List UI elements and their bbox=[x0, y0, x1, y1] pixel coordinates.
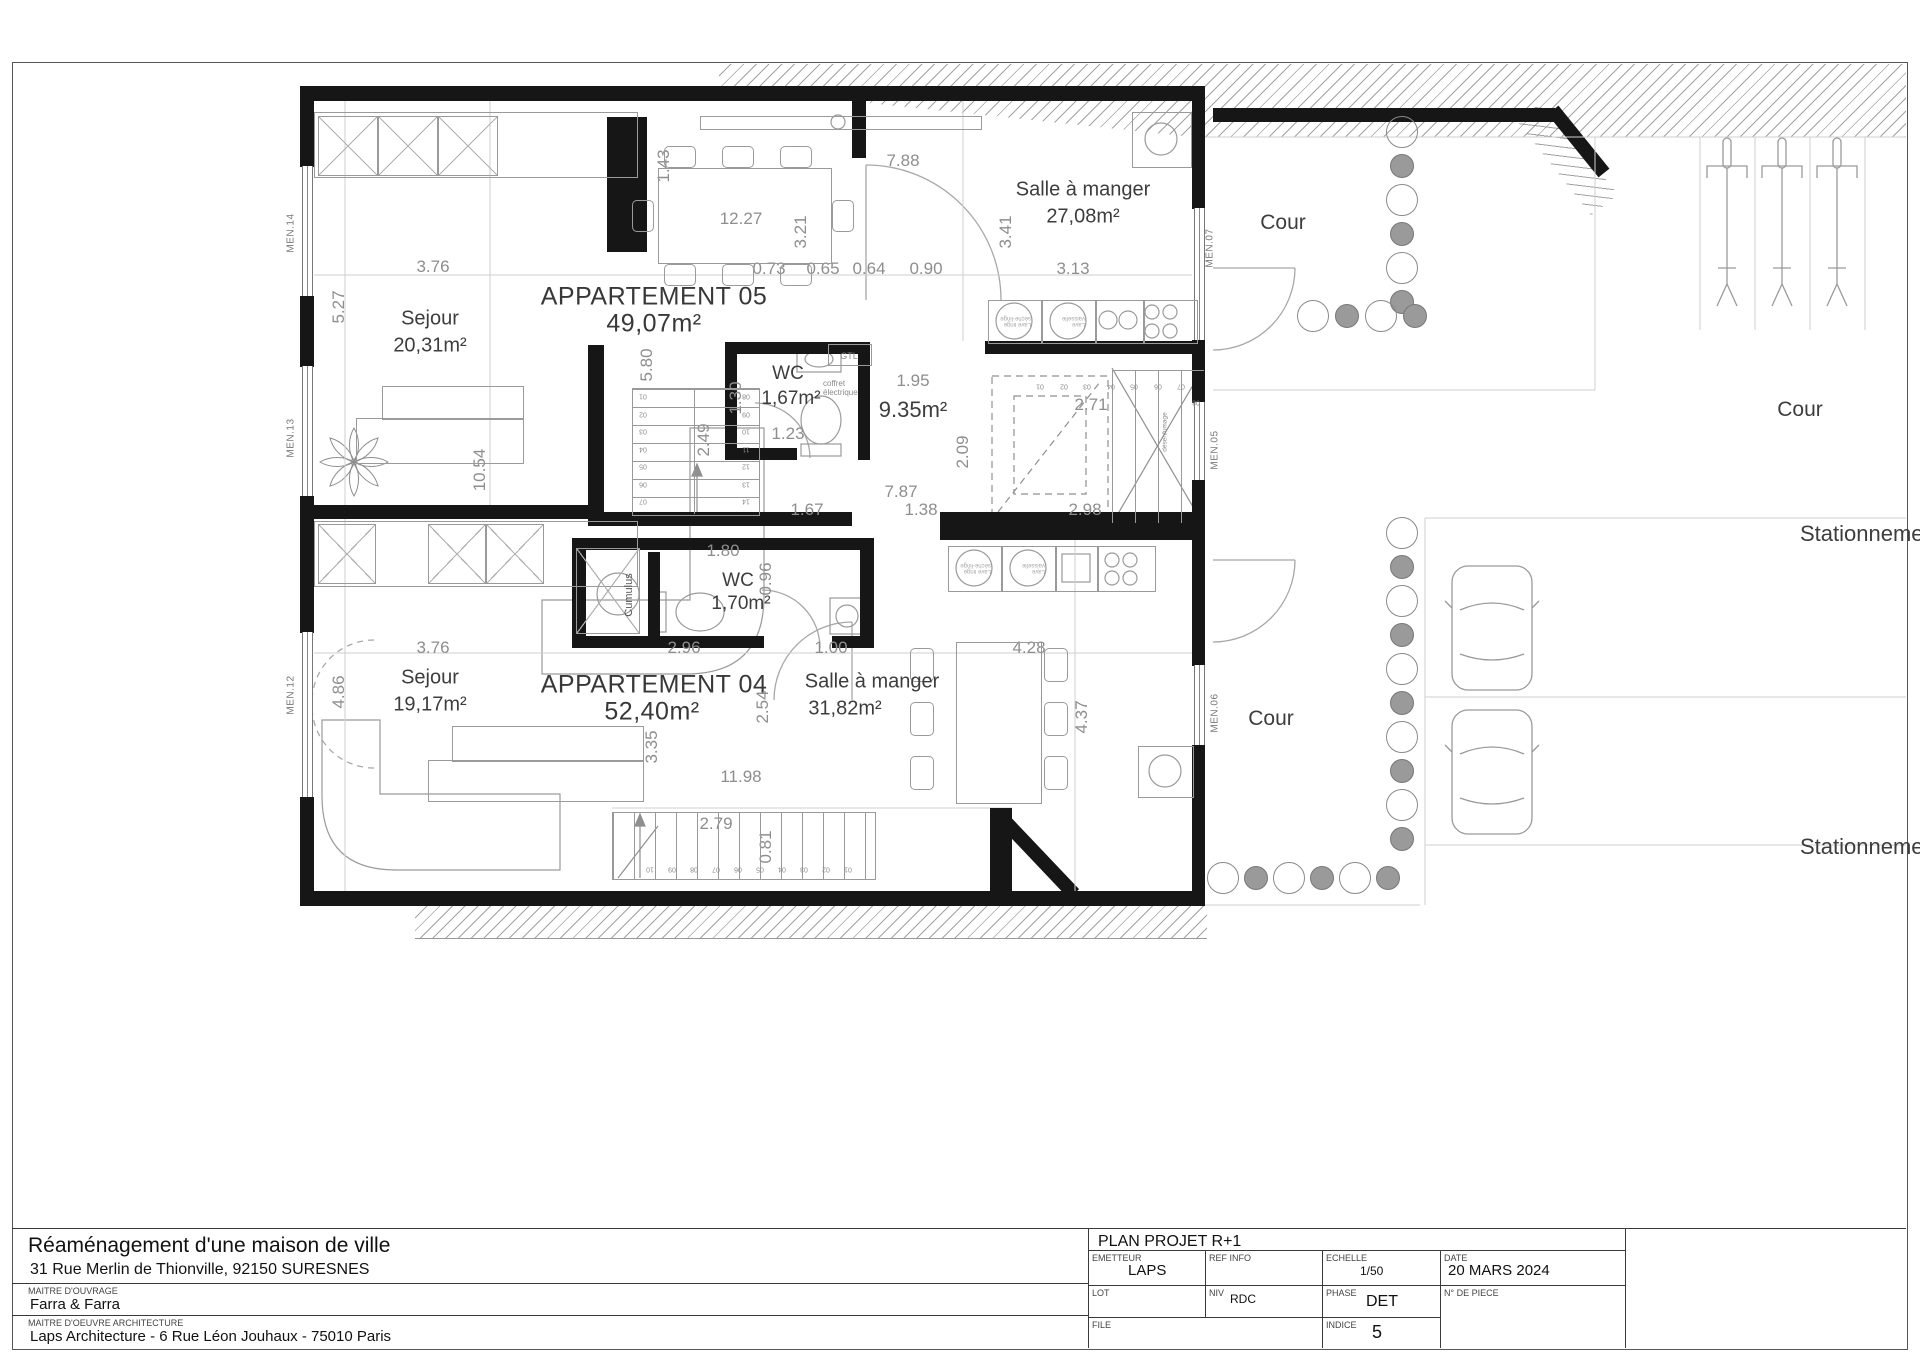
chair bbox=[722, 146, 754, 168]
chair bbox=[780, 264, 812, 286]
step-number: 12 bbox=[742, 463, 750, 470]
step-number: 07 bbox=[712, 866, 720, 873]
emetteur-value: LAPS bbox=[1128, 1262, 1166, 1279]
wall bbox=[1192, 101, 1205, 189]
dimension-label: 1.80 bbox=[706, 541, 739, 561]
dimension-label: 2.98 bbox=[1068, 500, 1101, 520]
stationnement-bottom-label: Stationnement bbox=[1800, 834, 1920, 860]
dimension-label: 0.96 bbox=[756, 562, 776, 595]
indice-label: INDICE bbox=[1326, 1320, 1357, 1330]
wall bbox=[860, 538, 874, 648]
furniture-outline bbox=[1096, 300, 1144, 344]
file-label: FILE bbox=[1092, 1320, 1111, 1330]
room-sejour-04: Sejour bbox=[401, 667, 459, 690]
maitre-ouvrage-label: MAITRE D'OUVRAGE bbox=[28, 1286, 118, 1296]
step-number: 03 bbox=[800, 866, 808, 873]
tree bbox=[1386, 517, 1418, 549]
step-number: 03 bbox=[1083, 383, 1091, 390]
step-number: 06 bbox=[734, 866, 742, 873]
bush bbox=[1390, 623, 1414, 647]
wall bbox=[648, 552, 660, 648]
cour-bottom-label: Cour bbox=[1248, 707, 1294, 731]
echelle-value: 1/50 bbox=[1360, 1264, 1383, 1278]
apartment-05-area: 49,07m² bbox=[606, 310, 701, 339]
phase-value: DET bbox=[1366, 1293, 1398, 1311]
tree bbox=[1207, 862, 1239, 894]
maitre-oeuvre-label: MAITRE D'OEUVRE ARCHITECTURE bbox=[28, 1318, 183, 1328]
chair bbox=[1044, 648, 1068, 682]
cumulus-label: Cumulus bbox=[623, 573, 635, 616]
appliance-label-lave-linge-04: Lave linge sèche-linge bbox=[957, 562, 991, 574]
dimension-label: 1.38 bbox=[904, 500, 937, 520]
tree bbox=[1386, 252, 1418, 284]
hatch-bottom-band bbox=[415, 906, 1207, 939]
bush bbox=[1390, 759, 1414, 783]
bush bbox=[1244, 866, 1268, 890]
furniture-outline bbox=[356, 418, 524, 464]
appliance-label-lave-vaisselle-05: Lave vaisselle bbox=[1051, 315, 1085, 327]
bush bbox=[1376, 866, 1400, 890]
room-salle-a-manger-04: Salle à manger bbox=[805, 671, 940, 694]
bush bbox=[1390, 222, 1414, 246]
room-salle-a-manger-05-area: 27,08m² bbox=[1046, 206, 1119, 229]
dimension-label: 1.95 bbox=[896, 371, 929, 391]
furniture-outline bbox=[1132, 112, 1192, 168]
dimension-label: 3.41 bbox=[996, 215, 1016, 248]
furniture-outline bbox=[658, 168, 832, 264]
coffret-electrique-label: coffret électrique bbox=[823, 380, 867, 398]
step-number: 08 bbox=[690, 866, 698, 873]
piece-label: N° DE PIECE bbox=[1444, 1288, 1499, 1298]
cabinet bbox=[318, 116, 378, 176]
room-wc-05: WC bbox=[772, 363, 804, 385]
date-value: 20 MARS 2024 bbox=[1448, 1262, 1550, 1279]
tree bbox=[1386, 116, 1418, 148]
bush bbox=[1390, 827, 1414, 851]
wall bbox=[300, 797, 314, 905]
room-salle-a-manger-05: Salle à manger bbox=[1016, 179, 1151, 202]
tree bbox=[1386, 585, 1418, 617]
room-hall-05-area: 9.35m² bbox=[879, 397, 947, 423]
furniture-outline bbox=[428, 760, 644, 802]
window-label: MEN.13 bbox=[286, 418, 297, 457]
chair bbox=[910, 756, 934, 790]
central-stair-treads bbox=[632, 388, 760, 516]
dimension-label: 5.27 bbox=[329, 290, 349, 323]
step-number: 13 bbox=[742, 480, 750, 487]
step-number: 07 bbox=[639, 498, 647, 505]
window-label: MEN.07 bbox=[1205, 228, 1216, 267]
step-number: 01 bbox=[1036, 383, 1044, 390]
furniture-outline bbox=[956, 642, 1042, 804]
dimension-label: 4.37 bbox=[1072, 700, 1092, 733]
cabinet bbox=[486, 524, 544, 584]
dimension-label: 7.88 bbox=[886, 151, 919, 171]
dimension-label: 2.09 bbox=[953, 435, 973, 468]
tree bbox=[1273, 862, 1305, 894]
drawing-title: PLAN PROJET R+1 bbox=[1098, 1233, 1241, 1251]
chair bbox=[910, 702, 934, 736]
bush bbox=[1390, 154, 1414, 178]
dimension-label: 11.98 bbox=[720, 767, 761, 787]
wall bbox=[990, 808, 1012, 892]
dimension-label: 0.64 bbox=[852, 259, 885, 279]
cour-top-label: Cour bbox=[1260, 211, 1306, 235]
echelle-label: ECHELLE bbox=[1326, 1253, 1367, 1263]
wall bbox=[1192, 189, 1205, 209]
window-men-14 bbox=[302, 166, 313, 296]
dimension-label: 2.96 bbox=[667, 638, 700, 658]
step-number: 11 bbox=[742, 445, 749, 452]
tree bbox=[1386, 721, 1418, 753]
window-men-12 bbox=[302, 632, 313, 797]
desenfumage-label: désenfumage bbox=[1162, 412, 1169, 451]
wall bbox=[300, 505, 590, 519]
step-number: 05 bbox=[639, 463, 647, 470]
chair bbox=[632, 200, 654, 232]
step-number: 08 bbox=[742, 393, 750, 400]
step-number: 04 bbox=[1107, 383, 1115, 390]
room-sejour-05-area: 20,31m² bbox=[393, 335, 466, 358]
wall bbox=[300, 101, 314, 167]
step-number: 04 bbox=[639, 445, 647, 452]
tree bbox=[1386, 653, 1418, 685]
furniture-outline bbox=[1056, 546, 1098, 592]
step-number: 05 bbox=[756, 866, 764, 873]
cabinet bbox=[438, 116, 498, 176]
dimension-label: 5.80 bbox=[637, 348, 657, 381]
tree bbox=[1365, 300, 1397, 332]
window-men-06 bbox=[1194, 665, 1205, 745]
bush bbox=[1390, 691, 1414, 715]
furniture-outline bbox=[1138, 746, 1194, 798]
room-wc-04-area: 1,70m² bbox=[711, 593, 770, 615]
room-wc-04: WC bbox=[722, 570, 754, 592]
project-address: 31 Rue Merlin de Thionville, 92150 SURES… bbox=[30, 1261, 369, 1279]
bush bbox=[1390, 555, 1414, 579]
dimension-label: 3.76 bbox=[416, 638, 449, 658]
chair bbox=[664, 146, 696, 168]
window-men-13 bbox=[302, 366, 313, 496]
furniture-outline bbox=[452, 726, 644, 762]
wall bbox=[300, 296, 314, 367]
floor-plan-sheet: MEN.14MEN.13MEN.12MEN.07MEN.05MEN.061.43… bbox=[0, 0, 1920, 1358]
niv-value: RDC bbox=[1230, 1292, 1256, 1306]
dimension-label: 1.67 bbox=[790, 500, 823, 520]
apartment-04-title: APPARTEMENT 04 bbox=[541, 671, 768, 700]
furniture-outline bbox=[382, 386, 524, 420]
upper-stair-treads bbox=[1112, 370, 1204, 523]
step-number: 14 bbox=[742, 498, 750, 505]
tree bbox=[1297, 300, 1329, 332]
furniture-outline bbox=[1144, 300, 1198, 344]
bush bbox=[1403, 304, 1427, 328]
step-number: 09 bbox=[668, 866, 676, 873]
dimension-label: 3.76 bbox=[416, 257, 449, 277]
apartment-05-title: APPARTEMENT 05 bbox=[541, 283, 768, 312]
step-number: 10 bbox=[646, 866, 654, 873]
step-number: 06 bbox=[639, 480, 647, 487]
step-number: 05 bbox=[1130, 383, 1138, 390]
window-label: MEN.14 bbox=[286, 213, 297, 252]
wall bbox=[588, 345, 604, 525]
wall bbox=[300, 86, 1205, 101]
stationnement-top-label: Stationnement bbox=[1800, 521, 1920, 547]
dimension-label: 2.71 bbox=[1074, 395, 1107, 415]
window-label: MEN.06 bbox=[1210, 693, 1221, 732]
lot-label: LOT bbox=[1092, 1288, 1110, 1298]
wall bbox=[1213, 108, 1555, 122]
wall bbox=[300, 891, 1205, 906]
room-salle-a-manger-04-area: 31,82m² bbox=[808, 698, 881, 721]
dimension-label: 3.13 bbox=[1056, 259, 1089, 279]
project-title: Réaménagement d'une maison de ville bbox=[28, 1234, 390, 1258]
window-label: MEN.05 bbox=[1210, 430, 1221, 469]
room-sejour-05: Sejour bbox=[401, 308, 459, 331]
apartment-04-area: 52,40m² bbox=[604, 698, 699, 727]
bush bbox=[1335, 304, 1359, 328]
appliance-label-lave-vaisselle-04: Lave vaisselle bbox=[1011, 562, 1045, 574]
chair bbox=[1044, 756, 1068, 790]
room-sejour-04-area: 19,17m² bbox=[393, 694, 466, 717]
tree bbox=[1339, 862, 1371, 894]
tree bbox=[1386, 789, 1418, 821]
step-number: 06 bbox=[1154, 383, 1162, 390]
ref-info-label: REF INFO bbox=[1209, 1253, 1251, 1263]
step-number: 01 bbox=[639, 393, 647, 400]
cabinet bbox=[378, 116, 438, 176]
gtl-label: GTL bbox=[840, 351, 858, 361]
step-number: 07 bbox=[1177, 383, 1185, 390]
room-wc-05-area: 1,67m² bbox=[761, 388, 820, 410]
dimension-label: 0.90 bbox=[909, 259, 942, 279]
chair bbox=[832, 200, 854, 232]
step-number: 03 bbox=[639, 428, 647, 435]
appliance-label-lave-linge-05: Lave linge sèche-linge bbox=[997, 315, 1031, 327]
indice-value: 5 bbox=[1372, 1322, 1382, 1343]
step-number: 02 bbox=[639, 410, 647, 417]
maitre-oeuvre: Laps Architecture - 6 Rue Léon Jouhaux -… bbox=[30, 1328, 391, 1345]
chair bbox=[1044, 702, 1068, 736]
phase-label: PHASE bbox=[1326, 1288, 1357, 1298]
step-number: 04 bbox=[778, 866, 786, 873]
dimension-label: 4.86 bbox=[329, 675, 349, 708]
maitre-ouvrage: Farra & Farra bbox=[30, 1296, 120, 1313]
cabinet bbox=[318, 524, 376, 584]
cabinet bbox=[428, 524, 486, 584]
step-number: 10 bbox=[742, 428, 750, 435]
dimension-label: 1.00 bbox=[814, 638, 847, 658]
dimension-label: 7.87 bbox=[884, 482, 917, 502]
niv-label: NIV bbox=[1209, 1288, 1224, 1298]
furniture-outline bbox=[1098, 546, 1156, 592]
step-number: 09 bbox=[742, 410, 750, 417]
step-number: 02 bbox=[1060, 383, 1068, 390]
dimension-label: 1.23 bbox=[771, 424, 804, 444]
furniture-outline bbox=[700, 116, 982, 130]
dimension-label: 3.35 bbox=[642, 730, 662, 763]
cour-middle-label: Cour bbox=[1777, 398, 1823, 422]
window-label: MEN.12 bbox=[286, 675, 297, 714]
central-stair-divider bbox=[694, 388, 695, 514]
step-number: 01 bbox=[844, 866, 852, 873]
bush bbox=[1310, 866, 1334, 890]
tree bbox=[1386, 184, 1418, 216]
step-number: 02 bbox=[822, 866, 830, 873]
step-number: 08 bbox=[1192, 399, 1200, 406]
chair bbox=[780, 146, 812, 168]
